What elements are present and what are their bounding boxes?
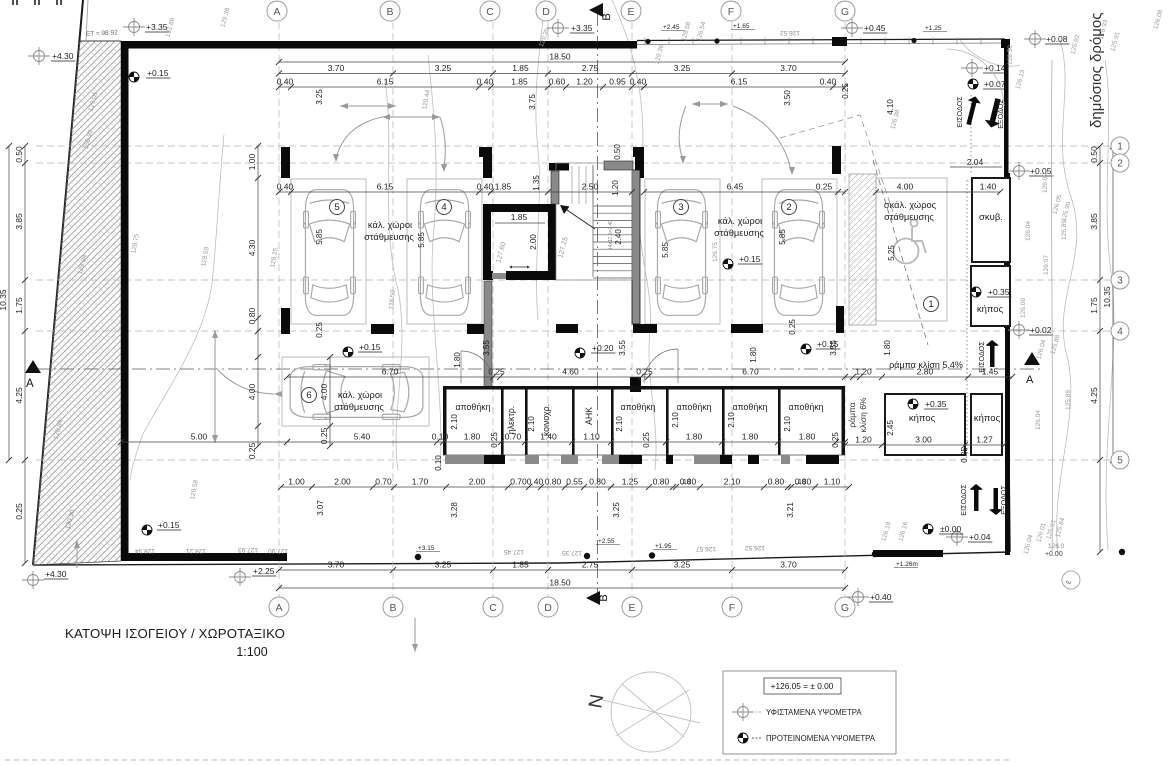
- svg-text:3.07: 3.07: [316, 500, 325, 516]
- svg-text:+3.15: +3.15: [418, 545, 435, 552]
- svg-text:ΠΡΟΤΕΙΝΟΜΕΝΑ ΥΨΟΜΕΤΡΑ: ΠΡΟΤΕΙΝΟΜΕΝΑ ΥΨΟΜΕΤΡΑ: [766, 734, 876, 743]
- svg-text:1.27: 1.27: [976, 435, 993, 445]
- svg-text:2.00: 2.00: [529, 234, 538, 250]
- svg-text:0.25: 0.25: [816, 182, 833, 192]
- svg-text:B: B: [601, 13, 613, 20]
- svg-text:κάλ. χώροι: κάλ. χώροι: [368, 220, 412, 230]
- svg-text:1: 1: [1117, 142, 1123, 153]
- svg-text:σκυβ.: σκυβ.: [979, 212, 1003, 223]
- svg-text:1.80: 1.80: [686, 432, 703, 442]
- svg-text:ΕΙΣΟΔΟΣ: ΕΙΣΟΔΟΣ: [959, 484, 968, 516]
- svg-text:1.75: 1.75: [14, 297, 24, 314]
- svg-text:±0.00: ±0.00: [940, 524, 961, 534]
- svg-text:κήπος: κήπος: [977, 304, 1004, 315]
- svg-text:3.00: 3.00: [915, 435, 932, 445]
- svg-text:3.25: 3.25: [674, 560, 691, 570]
- svg-text:+0.15: +0.15: [739, 254, 761, 264]
- svg-text:F: F: [729, 602, 735, 614]
- svg-text:4.25: 4.25: [14, 387, 24, 404]
- svg-text:0.60: 0.60: [549, 77, 566, 87]
- svg-text:ΕΙΣΟΔΟΣ: ΕΙΣΟΔΟΣ: [955, 96, 964, 128]
- svg-text:1.70: 1.70: [412, 477, 429, 487]
- svg-text:5.85: 5.85: [661, 242, 670, 258]
- svg-text:κήπος: κήπος: [974, 413, 1001, 424]
- svg-text:126.52: 126.52: [745, 544, 765, 551]
- svg-text:126.06: 126.06: [1020, 298, 1027, 318]
- svg-text:126.04: 126.04: [1025, 221, 1032, 241]
- svg-text:E: E: [627, 6, 634, 18]
- svg-text:+0.15: +0.15: [817, 339, 839, 349]
- svg-text:10.35: 10.35: [0, 289, 8, 311]
- svg-text:125.89: 125.89: [1061, 220, 1068, 240]
- svg-text:G: G: [841, 602, 849, 614]
- svg-text:3.25: 3.25: [435, 63, 452, 73]
- svg-text:ΚΑΤΟΨΗ ΙΣΟΓΕΙΟΥ / ΧΩΡΟΤΑΞΙΚΟ: ΚΑΤΟΨΗ ΙΣΟΓΕΙΟΥ / ΧΩΡΟΤΑΞΙΚΟ: [65, 626, 285, 641]
- svg-text:0.25: 0.25: [488, 367, 505, 377]
- svg-text:0.50: 0.50: [613, 144, 622, 160]
- svg-text:6.15: 6.15: [731, 77, 748, 87]
- svg-text:αποθήκη: αποθήκη: [456, 402, 491, 412]
- svg-text:D: D: [544, 602, 552, 614]
- svg-text:3.25: 3.25: [612, 502, 621, 518]
- svg-text:+0.15: +0.15: [147, 68, 169, 78]
- svg-text:1.80: 1.80: [742, 432, 759, 442]
- svg-text:0.80: 0.80: [768, 477, 785, 487]
- svg-text:κάλ. χώροι: κάλ. χώροι: [338, 390, 382, 400]
- svg-text:+0.15: +0.15: [158, 520, 180, 530]
- svg-text:F: F: [728, 6, 734, 18]
- svg-text:+0.45: +0.45: [864, 23, 886, 33]
- svg-text:2.50: 2.50: [582, 182, 599, 192]
- svg-text:A: A: [275, 602, 282, 614]
- svg-text:126.09: 126.09: [1042, 173, 1049, 193]
- svg-text:0.25: 0.25: [490, 432, 499, 448]
- svg-text:C: C: [489, 602, 497, 614]
- svg-text:1.85: 1.85: [512, 63, 529, 73]
- svg-text:+0.15: +0.15: [359, 342, 381, 352]
- svg-text:127.93: 127.93: [238, 546, 258, 553]
- svg-text:2.10: 2.10: [615, 416, 624, 432]
- svg-text:1.25: 1.25: [622, 477, 639, 487]
- svg-text:αποθήκη: αποθήκη: [677, 402, 712, 412]
- svg-text:αποθήκη: αποθήκη: [733, 402, 768, 412]
- svg-text:126.52: 126.52: [780, 29, 800, 36]
- svg-text:0.80: 0.80: [247, 307, 257, 324]
- svg-text:+1.65: +1.65: [733, 23, 750, 30]
- svg-text:0.80: 0.80: [589, 477, 606, 487]
- svg-text:0.80: 0.80: [653, 477, 670, 487]
- svg-text:0.40: 0.40: [277, 77, 294, 87]
- svg-text:2.10: 2.10: [527, 416, 536, 432]
- svg-text:1: 1: [928, 299, 933, 310]
- svg-text:3.70: 3.70: [780, 63, 797, 73]
- svg-text:18.50: 18.50: [549, 52, 571, 62]
- svg-text:+0.02: +0.02: [1030, 325, 1052, 335]
- svg-text:0.70: 0.70: [505, 432, 522, 442]
- svg-text:126.75: 126.75: [712, 242, 719, 262]
- svg-text:4.25: 4.25: [1089, 387, 1099, 404]
- svg-text:E: E: [628, 602, 635, 614]
- svg-text:4.30: 4.30: [247, 239, 257, 256]
- svg-text:1.85: 1.85: [511, 212, 528, 222]
- svg-text:κήπος: κήπος: [909, 413, 936, 424]
- svg-text:κλίση 6%: κλίση 6%: [858, 397, 868, 432]
- svg-text:2.00: 2.00: [334, 477, 351, 487]
- svg-text:3.21: 3.21: [786, 502, 795, 518]
- svg-text:2.04: 2.04: [967, 157, 984, 167]
- svg-text:127.35: 127.35: [562, 549, 582, 556]
- svg-text:+0.00: +0.00: [1045, 551, 1063, 558]
- svg-text:1.40: 1.40: [540, 432, 557, 442]
- svg-text:0.80: 0.80: [545, 477, 562, 487]
- svg-text:+4.30: +4.30: [45, 569, 67, 579]
- svg-text:6.70: 6.70: [382, 367, 399, 377]
- svg-text:2: 2: [786, 202, 791, 213]
- svg-text:127.45: 127.45: [504, 548, 524, 555]
- svg-text:1.80: 1.80: [749, 347, 758, 363]
- svg-text:4.60: 4.60: [562, 367, 579, 377]
- svg-text:1.80: 1.80: [464, 432, 481, 442]
- svg-text:2.10: 2.10: [727, 412, 736, 428]
- svg-text:5.85: 5.85: [778, 229, 787, 245]
- svg-text:+0.40: +0.40: [870, 592, 892, 602]
- svg-text:0.10: 0.10: [434, 455, 443, 471]
- svg-text:1.40: 1.40: [980, 182, 997, 192]
- svg-text:0.70: 0.70: [510, 477, 527, 487]
- svg-text:0.25: 0.25: [247, 442, 257, 459]
- svg-text:125.89: 125.89: [1065, 390, 1072, 410]
- svg-text:128.21: 128.21: [186, 547, 206, 554]
- svg-text:126.07: 126.07: [1043, 255, 1050, 275]
- svg-text:+2.55: +2.55: [598, 538, 615, 545]
- svg-text:0.25: 0.25: [315, 322, 324, 338]
- svg-text:4: 4: [441, 202, 446, 213]
- svg-text:4: 4: [1117, 327, 1123, 338]
- svg-text:B: B: [389, 602, 396, 614]
- svg-text:1.00: 1.00: [247, 153, 257, 170]
- svg-text:σκάλ. χώρος: σκάλ. χώρος: [884, 200, 937, 210]
- svg-text:128.34: 128.34: [135, 547, 155, 554]
- svg-text:A: A: [1026, 374, 1034, 386]
- svg-text:2.45: 2.45: [886, 420, 895, 436]
- svg-text:0.10: 0.10: [432, 432, 449, 442]
- svg-text:1.75: 1.75: [1089, 297, 1099, 314]
- svg-text:2.10: 2.10: [724, 477, 741, 487]
- svg-text:1.85: 1.85: [495, 182, 512, 192]
- svg-text:1.80: 1.80: [453, 352, 462, 368]
- svg-text:+4.30: +4.30: [52, 51, 74, 61]
- svg-text:5.25: 5.25: [887, 245, 896, 261]
- svg-text:1.80: 1.80: [883, 340, 892, 356]
- svg-text:+0.20: +0.20: [592, 343, 614, 353]
- svg-text:3.25: 3.25: [674, 63, 691, 73]
- svg-text:δημόσιος δρόμος: δημόσιος δρόμος: [1088, 13, 1105, 128]
- svg-text:3: 3: [678, 202, 683, 213]
- svg-text:1.10: 1.10: [824, 477, 841, 487]
- svg-text:126.04: 126.04: [1035, 410, 1042, 430]
- svg-text:1.20: 1.20: [576, 77, 593, 87]
- svg-text:0.25: 0.25: [788, 319, 797, 335]
- svg-text:1.10: 1.10: [583, 432, 600, 442]
- svg-text:0.40: 0.40: [477, 182, 494, 192]
- svg-text:3: 3: [1117, 276, 1123, 287]
- svg-text:+1.25: +1.25: [925, 25, 942, 32]
- svg-text:1.35: 1.35: [532, 175, 541, 191]
- svg-text:3.50: 3.50: [783, 90, 792, 106]
- svg-text:6.45: 6.45: [727, 182, 744, 192]
- svg-text:1.85: 1.85: [511, 77, 528, 87]
- svg-text:στάθμευσης: στάθμευσης: [714, 228, 764, 238]
- svg-text:ΕΞΟΔΟΣ: ΕΞΟΔΟΣ: [999, 485, 1008, 515]
- svg-text:+3.35: +3.35: [571, 23, 593, 33]
- svg-text:ΥΦΙΣΤΑΜΕΝΑ ΥΨΟΜΕΤΡΑ: ΥΦΙΣΤΑΜΕΝΑ ΥΨΟΜΕΤΡΑ: [766, 708, 862, 717]
- svg-text:+1.26m: +1.26m: [896, 561, 918, 568]
- svg-text:0.55: 0.55: [566, 477, 583, 487]
- svg-text:3.28: 3.28: [450, 502, 459, 518]
- svg-text:1.85: 1.85: [512, 560, 529, 570]
- svg-text:0.25: 0.25: [636, 367, 653, 377]
- svg-text:4.00: 4.00: [247, 383, 257, 400]
- svg-text:1.20: 1.20: [855, 435, 872, 445]
- svg-text:5.00: 5.00: [191, 432, 208, 442]
- svg-text:+3.35: +3.35: [146, 22, 168, 32]
- svg-text:0.40: 0.40: [277, 182, 294, 192]
- svg-text:126.0: 126.0: [1048, 543, 1065, 550]
- svg-text:127.90: 127.90: [268, 547, 288, 554]
- svg-text:0.25: 0.25: [831, 432, 840, 448]
- svg-text:1.20: 1.20: [855, 367, 872, 377]
- svg-text:.10: .10: [681, 479, 691, 486]
- svg-text:κάλ. χώροι: κάλ. χώροι: [718, 216, 762, 226]
- svg-text:+0.35: +0.35: [925, 399, 947, 409]
- svg-text:5: 5: [1117, 456, 1123, 467]
- svg-text:2.75: 2.75: [582, 63, 599, 73]
- svg-text:A: A: [26, 378, 34, 390]
- svg-text:αποθήκη: αποθήκη: [621, 402, 656, 412]
- svg-text:4.00: 4.00: [319, 383, 329, 400]
- svg-text:.10: .10: [796, 479, 806, 486]
- svg-text:4.00: 4.00: [897, 182, 914, 192]
- svg-text:+2.45: +2.45: [663, 24, 680, 31]
- svg-text:D: D: [542, 6, 550, 18]
- svg-text:3.25: 3.25: [315, 89, 324, 105]
- svg-text:1.80: 1.80: [799, 432, 816, 442]
- svg-text:5.85: 5.85: [417, 232, 426, 248]
- svg-text:B: B: [598, 594, 610, 601]
- svg-text:2.10: 2.10: [450, 414, 459, 430]
- svg-text:2: 2: [1117, 159, 1123, 170]
- svg-text:G: G: [841, 6, 849, 18]
- svg-text:5.40: 5.40: [354, 432, 371, 442]
- svg-text:ράμπα: ράμπα: [847, 402, 857, 427]
- svg-text:3.70: 3.70: [328, 560, 345, 570]
- svg-text:ΑΗΚ: ΑΗΚ: [584, 407, 594, 425]
- svg-text:στάθμευσης: στάθμευσης: [334, 402, 384, 412]
- svg-text:στάθμευσης: στάθμευσης: [884, 212, 934, 222]
- svg-text:3.55: 3.55: [618, 340, 627, 356]
- svg-text:ηλεκτρ.: ηλεκτρ.: [506, 406, 516, 435]
- svg-text:C: C: [486, 6, 494, 18]
- svg-text:2.00: 2.00: [469, 477, 486, 487]
- svg-text:0.25: 0.25: [642, 432, 651, 448]
- svg-text:126.50: 126.50: [1007, 45, 1014, 65]
- svg-text:5.85: 5.85: [315, 229, 324, 245]
- svg-text:0.40: 0.40: [630, 77, 647, 87]
- svg-text:+1.95: +1.95: [655, 543, 672, 550]
- svg-text:1.00: 1.00: [288, 477, 305, 487]
- svg-text:0.25: 0.25: [319, 427, 329, 444]
- svg-text:3.55: 3.55: [482, 340, 491, 356]
- svg-text:+2.25: +2.25: [253, 566, 275, 576]
- svg-text:2.10: 2.10: [783, 416, 792, 432]
- svg-text:+0.14: +0.14: [984, 63, 1006, 73]
- svg-text:0.50: 0.50: [1089, 146, 1099, 163]
- svg-text:στάθμευσης: στάθμευσης: [364, 232, 414, 242]
- svg-text:A: A: [273, 6, 280, 18]
- svg-text:3.75: 3.75: [528, 94, 537, 110]
- svg-text:2.75: 2.75: [582, 560, 599, 570]
- svg-text:5: 5: [334, 202, 339, 213]
- svg-text:1.45: 1.45: [982, 367, 999, 377]
- svg-text:1.20: 1.20: [611, 180, 620, 196]
- svg-text:αποθήκη: αποθήκη: [789, 402, 824, 412]
- svg-text:B: B: [386, 6, 393, 18]
- svg-text:0.40: 0.40: [820, 77, 837, 87]
- svg-text:0.25: 0.25: [960, 447, 969, 463]
- svg-text:+0.07: +0.07: [984, 79, 1006, 89]
- svg-text:1:100: 1:100: [236, 645, 267, 659]
- svg-text:3.85: 3.85: [1089, 213, 1099, 230]
- svg-text:2.10: 2.10: [671, 412, 680, 428]
- svg-text:0.25: 0.25: [14, 503, 24, 520]
- svg-text:126.57: 126.57: [696, 545, 716, 552]
- svg-text:2.40: 2.40: [614, 229, 623, 245]
- svg-text:+0.35: +0.35: [988, 287, 1010, 297]
- svg-text:0.40: 0.40: [477, 77, 494, 87]
- svg-text:6: 6: [306, 390, 311, 401]
- svg-text:6.70: 6.70: [742, 367, 759, 377]
- svg-text:+126.05 = ± 0.00: +126.05 = ± 0.00: [771, 681, 834, 691]
- svg-text:+0.04: +0.04: [969, 532, 991, 542]
- svg-text:+0.08: +0.08: [1046, 34, 1068, 44]
- svg-text:0.95: 0.95: [609, 77, 626, 87]
- svg-text:3.25: 3.25: [435, 560, 452, 570]
- svg-text:10.35: 10.35: [1102, 286, 1112, 308]
- svg-text:6.15: 6.15: [377, 77, 394, 87]
- svg-text:3.85: 3.85: [14, 213, 24, 230]
- svg-text:6.15: 6.15: [377, 182, 394, 192]
- svg-text:18.50: 18.50: [549, 578, 571, 588]
- svg-text:0.70: 0.70: [375, 477, 392, 487]
- svg-text:0.25: 0.25: [841, 83, 850, 99]
- svg-text:0.50: 0.50: [14, 146, 24, 163]
- svg-text:3.70: 3.70: [780, 560, 797, 570]
- svg-text:3.70: 3.70: [328, 63, 345, 73]
- svg-text:0.40: 0.40: [527, 477, 544, 487]
- svg-text:2.80: 2.80: [917, 367, 934, 377]
